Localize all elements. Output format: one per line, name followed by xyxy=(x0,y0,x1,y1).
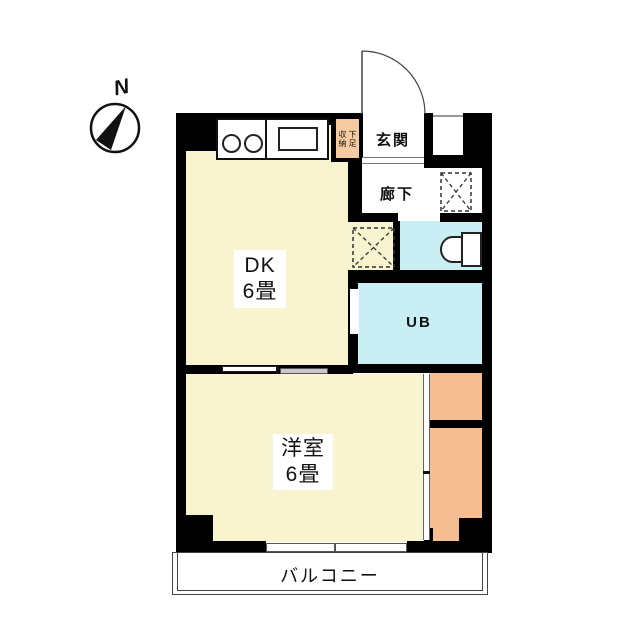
wall-segment xyxy=(348,270,482,283)
western-room-label-box: 洋室 6畳 xyxy=(273,434,333,490)
floor-plan-canvas: 収納 下足 N バルコニー DK 6畳 洋室 6畳 xyxy=(0,0,640,640)
toilet-icon xyxy=(440,236,463,263)
unit-bath-door-opening xyxy=(350,289,359,334)
window-opening xyxy=(266,543,407,552)
stove-burners-icon xyxy=(244,134,263,153)
balcony-label: バルコニー xyxy=(173,562,487,588)
window-tick xyxy=(334,544,336,551)
balcony-area: バルコニー xyxy=(172,552,488,595)
entrance-door-swing-icon xyxy=(356,44,434,122)
dk-size-label: 6畳 xyxy=(243,279,278,305)
hallway-label: 廊下 xyxy=(368,183,426,204)
shoe-storage-label-left: 収納 xyxy=(338,130,347,148)
dk-label: DK xyxy=(244,253,275,279)
wall-segment xyxy=(176,113,186,553)
entrance-step xyxy=(362,157,424,164)
closet-door-track xyxy=(423,374,430,540)
appliance-space-x-icon xyxy=(440,172,472,212)
closet-top-fill xyxy=(430,373,482,420)
stove-burners-icon xyxy=(222,134,241,153)
entrance-alcove-fill xyxy=(433,116,463,157)
western-room-label: 洋室 xyxy=(281,436,325,462)
unit-bath-label: UB xyxy=(399,314,439,331)
wall-segment xyxy=(348,213,398,222)
alcove-top-line xyxy=(433,115,463,117)
dk-label-box: DK 6畳 xyxy=(234,250,286,308)
shoe-storage-label-right: 下足 xyxy=(348,130,357,148)
wall-segment xyxy=(482,113,492,553)
toilet-icon xyxy=(461,232,482,267)
entrance-label: 玄関 xyxy=(362,129,424,150)
western-room-size-label: 6畳 xyxy=(286,462,321,488)
appliance-space-x-icon xyxy=(352,227,395,268)
wall-segment xyxy=(348,364,492,373)
sliding-door-panel xyxy=(222,366,277,372)
kitchen-sink-icon xyxy=(278,127,318,151)
sliding-door-panel xyxy=(280,368,328,374)
shoe-storage-label: 収納 下足 xyxy=(336,128,359,150)
wall-segment xyxy=(423,420,492,428)
counter-divider xyxy=(265,118,267,160)
sliding-door-tick xyxy=(276,366,279,374)
wall-segment xyxy=(424,155,492,168)
wall-segment xyxy=(440,213,482,222)
closet-door-tick xyxy=(423,471,430,474)
